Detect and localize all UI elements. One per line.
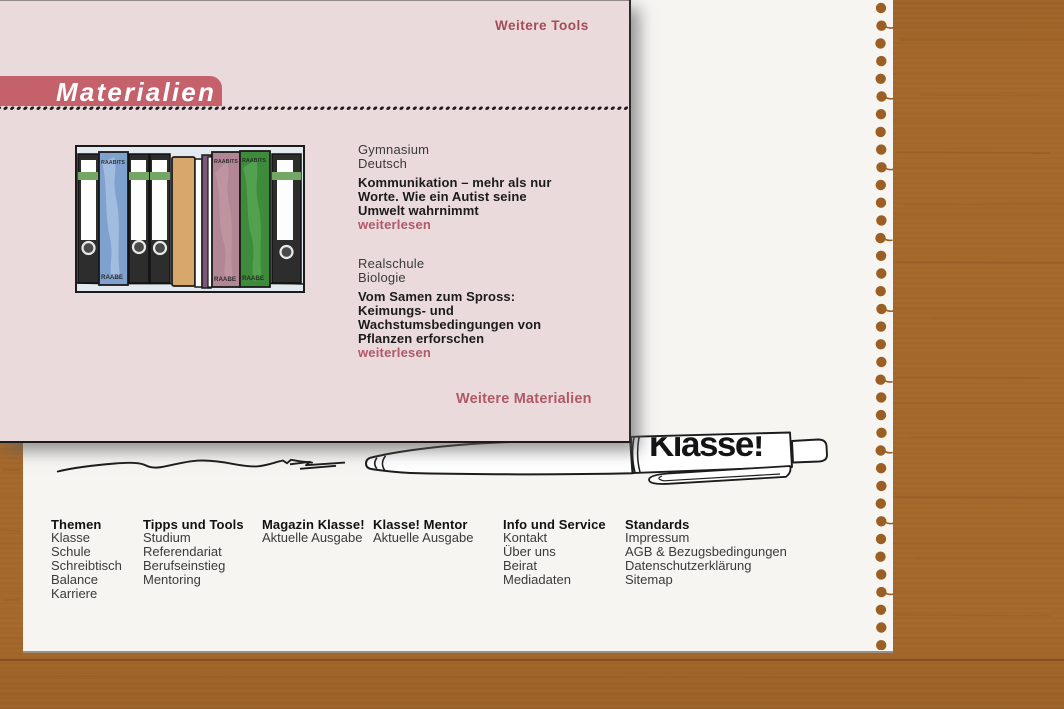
svg-text:RAABE: RAABE (101, 274, 123, 281)
svg-text:RAABE: RAABE (242, 275, 264, 282)
svg-text:RAABITS: RAABITS (101, 160, 125, 166)
svg-text:RAABITS: RAABITS (214, 159, 238, 165)
svg-text:RAABE: RAABE (214, 276, 236, 283)
svg-text:Klasse!: Klasse! (649, 425, 763, 464)
svg-text:RAABITS: RAABITS (242, 158, 266, 164)
